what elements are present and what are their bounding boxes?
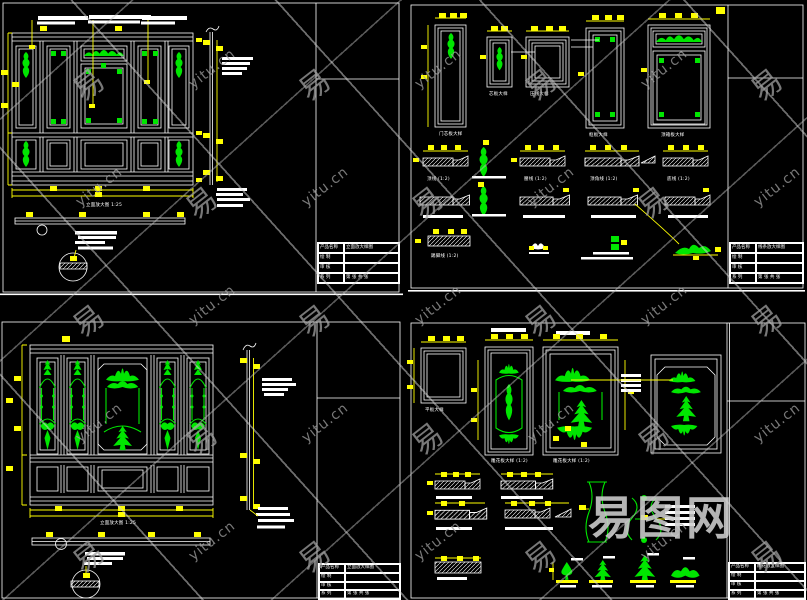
svg-text:平板大样: 平板大样	[425, 406, 444, 413]
elevation-caption: 立面放大图 1:25	[86, 201, 122, 208]
tb-page-cell: 第 张 共 张	[345, 590, 400, 599]
panel-details	[421, 13, 710, 128]
tb-drafter-label: 绘 制	[319, 573, 345, 582]
tb-series-label: 系 列	[730, 273, 756, 283]
sheet-frame	[2, 322, 400, 598]
tb-product-label: 产品名称	[319, 564, 345, 573]
tb-product-value: 线条放大样图	[756, 243, 803, 253]
title-block-q3: 产品名称 立面放大样图 绘 制 审 核 系 列 第 张 共 张	[318, 563, 401, 600]
sheet-bottom-left: 立面放大图 1:25	[0, 300, 403, 600]
title-block-q1: 产品名称 立面放大样图 绘 制 审 核 系 列 第 张 共 张	[317, 242, 400, 284]
carved-profiles	[579, 482, 695, 543]
svg-text:顶角线 (1:2): 顶角线 (1:2)	[590, 175, 618, 182]
svg-text:顶箱板大样: 顶箱板大样	[661, 131, 685, 138]
tb-drafter-label: 绘 制	[318, 253, 344, 263]
svg-text:底线 (1:2): 底线 (1:2)	[667, 175, 690, 182]
tb-checker-value	[345, 582, 400, 591]
svg-text:腰线 (1:2): 腰线 (1:2)	[524, 175, 547, 182]
tb-checker-label: 审 核	[729, 581, 755, 590]
tb-series-label: 系 列	[319, 590, 345, 599]
svg-text:顶线 (1:2): 顶线 (1:2)	[427, 175, 450, 182]
tb-product-value: 雕花放大样图	[755, 563, 805, 572]
tb-product-value: 立面放大样图	[345, 564, 400, 573]
tb-checker-value	[756, 263, 803, 273]
tb-page-cell: 第 张 共 张	[755, 590, 805, 599]
title-block-q2: 产品名称 线条放大样图 绘 制 审 核 系 列 第 张 共 张	[729, 242, 804, 284]
section-profile	[240, 343, 296, 529]
tb-page-cell: 第 张 共 张	[344, 273, 399, 283]
tb-product-value: 立面放大样图	[344, 243, 399, 253]
tb-drafter-label: 绘 制	[730, 253, 756, 263]
tb-page-cell: 第 张 共 张	[756, 273, 803, 283]
svg-text:雕花板大样 (1:2): 雕花板大样 (1:2)	[553, 457, 590, 464]
sheet-bottom-right: 平板大样 雕花板大样 (1:2) 雕花板大样 (1:2)	[403, 300, 807, 600]
svg-text:压线大样: 压线大样	[530, 90, 549, 97]
tb-checker-label: 审 核	[319, 582, 345, 591]
tb-series-label: 系 列	[318, 273, 344, 283]
svg-text:门芯板大样: 门芯板大样	[439, 130, 463, 137]
tb-checker-label: 审 核	[730, 263, 756, 273]
tb-drafter-label: 绘 制	[729, 572, 755, 581]
carved-wall-elevation	[30, 345, 213, 505]
tb-drafter-value	[755, 572, 805, 581]
tb-drafter-value	[344, 253, 399, 263]
tb-product-label: 产品名称	[729, 563, 755, 572]
plan-strip	[32, 532, 210, 550]
tb-checker-label: 审 核	[318, 263, 344, 273]
elevation-caption: 立面放大图 1:25	[100, 519, 136, 526]
cad-sheet-grid: 立面放大图 1:25	[0, 0, 807, 600]
tb-product-label: 产品名称	[730, 243, 756, 253]
svg-text:框板大样: 框板大样	[589, 131, 608, 138]
tb-drafter-value	[756, 253, 803, 263]
wall-elevation	[12, 33, 193, 185]
tb-checker-value	[344, 263, 399, 273]
title-block-q4: 产品名称 雕花放大样图 绘 制 审 核 系 列 第 张 共 张	[728, 562, 806, 600]
leader-annotations	[37, 15, 187, 25]
svg-text:踢脚线 (1:2): 踢脚线 (1:2)	[431, 252, 459, 259]
ornament-elevations	[435, 553, 700, 588]
svg-text:芯板大样: 芯板大样	[489, 90, 508, 97]
top-annotations	[491, 328, 590, 335]
moulding-sections	[427, 472, 571, 530]
tb-checker-value	[755, 581, 805, 590]
detail-callout	[71, 552, 125, 598]
detail-callout	[59, 231, 117, 281]
svg-text:雕花板大样 (1:2): 雕花板大样 (1:2)	[491, 457, 528, 464]
section-profile	[203, 26, 253, 207]
tb-series-label: 系 列	[729, 590, 755, 599]
tb-drafter-value	[345, 573, 400, 582]
tb-product-label: 产品名称	[318, 243, 344, 253]
moulding-sections	[413, 140, 710, 244]
carved-panel-details	[407, 334, 721, 455]
small-details	[415, 229, 721, 260]
